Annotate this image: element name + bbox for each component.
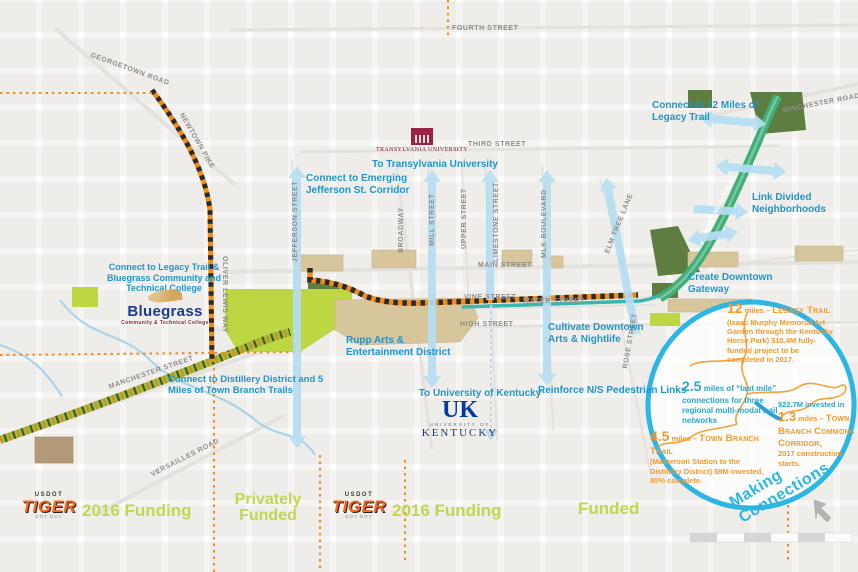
funding-2016-left: 2016 Funding	[82, 502, 192, 519]
bluegrass-logo: Bluegrass Community & Technical College	[110, 290, 220, 326]
lexington-trail-map: FOURTH STREET THIRD STREET MAIN STREET V…	[0, 0, 858, 572]
transylvania-logo-name: TRANSYLVANIA UNIVERSITY	[362, 147, 482, 153]
annotation-link-neighborhoods: Link Divided Neighborhoods	[752, 192, 858, 216]
stat-legacy-num: 12	[727, 300, 743, 316]
stat-last-mile-num: 2.5	[682, 378, 701, 394]
annotation-gateway: Create Downtown Gateway	[688, 272, 780, 296]
street-label-fourth: FOURTH STREET	[452, 25, 519, 32]
annotation-legacy-12: Connect to 12 Miles of Legacy Trail	[652, 100, 778, 124]
annotation-transylvania: To Transylvania University	[360, 159, 510, 171]
stat-town-branch-prefix: miles –	[672, 434, 700, 443]
funding-2016-mid: 2016 Funding	[392, 502, 502, 519]
annotation-jefferson-corridor: Connect to Emerging Jefferson St. Corrid…	[306, 173, 438, 197]
street-label-water: WATER STREET	[523, 298, 585, 305]
stat-legacy-prefix: miles –	[745, 306, 773, 315]
funding-privately: Privately Funded	[225, 492, 311, 524]
street-label-vine: VINE STREET	[464, 294, 517, 301]
street-label-broadway: BROADWAY	[398, 207, 405, 253]
stat-commons-prefix: miles –	[798, 414, 826, 423]
stat-last-mile: 2.5 miles of “last mile” connections for…	[682, 378, 788, 426]
uk-logo: UK UNIVERSITY OF KENTUCKY	[415, 400, 505, 439]
annotation-rupp: Rupp Arts & Entertainment District	[346, 335, 468, 359]
transylvania-logo: TRANSYLVANIA UNIVERSITY	[362, 128, 482, 153]
tiger-wordmark: TIGER	[18, 498, 80, 515]
stat-invested-line: $22.7M invested in	[778, 400, 858, 409]
stat-town-branch: 4.5 miles – Town Branch Trail (Masterson…	[650, 428, 772, 486]
uk-logo-kentucky: KENTUCKY	[415, 427, 505, 439]
street-label-mill: MILL STREET	[429, 194, 436, 246]
street-label-limestone: LIMESTONE STREET	[493, 182, 500, 262]
tiger-logo-mid: USDOT TIGER DOT.GOV	[328, 492, 390, 520]
scale-bar	[690, 533, 852, 542]
street-label-upper: UPPER STREET	[461, 188, 468, 249]
annotation-distillery: Connect to Distillery District and 5 Mil…	[168, 374, 340, 396]
bluegrass-leaf-icon	[147, 288, 182, 305]
street-label-main: MAIN STREET	[478, 262, 532, 269]
bluegrass-logo-name: Bluegrass	[110, 303, 220, 320]
uk-logo-letters: UK	[415, 400, 505, 422]
funding-funded: Funded	[578, 500, 639, 517]
stat-legacy-name: Legacy Trail	[772, 305, 830, 316]
transylvania-crest-icon	[411, 128, 433, 145]
tiger-logo-left: USDOT TIGER DOT.GOV	[18, 492, 80, 520]
stat-town-branch-num: 4.5	[650, 428, 669, 444]
street-label-mlk: MLK BOULEVARD	[541, 189, 548, 258]
street-label-jefferson: JEFFERSON STREET	[292, 181, 299, 262]
street-label-high: HIGH STREET	[460, 321, 514, 328]
annotation-arts-nightlife: Cultivate Downtown Arts & Nightlife	[548, 322, 658, 346]
stat-legacy-detail: (Isaac Murphy Memorial Art Garden throug…	[727, 318, 835, 365]
bluegrass-logo-sub: Community & Technical College	[110, 320, 220, 326]
stat-legacy-trail: 12 miles – Legacy Trail (Isaac Murphy Me…	[727, 300, 835, 364]
tiger-wordmark: TIGER	[328, 498, 390, 515]
stat-commons-num: 1.3	[778, 409, 796, 424]
annotation-uk: To University of Kentucky	[400, 388, 560, 400]
north-arrow-icon	[814, 500, 831, 522]
